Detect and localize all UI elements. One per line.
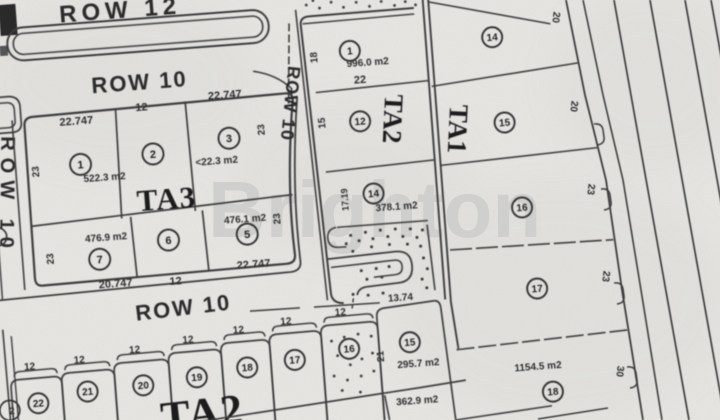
svg-text:23: 23 — [584, 183, 596, 196]
svg-text:6: 6 — [165, 235, 172, 247]
svg-text:18: 18 — [309, 51, 321, 63]
svg-text:19: 19 — [191, 372, 203, 384]
svg-text:18: 18 — [547, 387, 559, 399]
svg-text:22.747: 22.747 — [59, 114, 93, 128]
svg-text:13.74: 13.74 — [388, 292, 414, 305]
svg-text:15: 15 — [499, 118, 511, 130]
svg-text:30: 30 — [613, 365, 625, 378]
svg-text:12: 12 — [135, 101, 148, 114]
svg-text:TA2: TA2 — [377, 94, 409, 144]
svg-text:23: 23 — [45, 253, 57, 265]
svg-text:5: 5 — [244, 229, 251, 241]
svg-text:16: 16 — [516, 203, 528, 215]
svg-text:23: 23 — [272, 212, 284, 224]
svg-text:20.747: 20.747 — [98, 277, 132, 291]
svg-text:TA1: TA1 — [442, 104, 474, 154]
svg-text:22.747: 22.747 — [236, 257, 270, 271]
svg-text:ROW 10: ROW 10 — [0, 136, 18, 255]
svg-text:17.19: 17.19 — [339, 188, 351, 211]
svg-text:18: 18 — [241, 363, 253, 375]
svg-text:23: 23 — [31, 165, 43, 177]
svg-text:20: 20 — [137, 381, 149, 393]
svg-text:22: 22 — [32, 398, 44, 410]
svg-text:12: 12 — [169, 275, 182, 288]
svg-text:12: 12 — [354, 117, 366, 129]
svg-text:15: 15 — [317, 117, 329, 129]
svg-text:Brighton: Brighton — [208, 165, 541, 254]
svg-text:3: 3 — [226, 133, 233, 145]
svg-text:7: 7 — [96, 254, 103, 266]
svg-text:15: 15 — [404, 337, 416, 349]
svg-text:21: 21 — [82, 387, 94, 399]
svg-text:14: 14 — [486, 32, 498, 44]
svg-text:20: 20 — [549, 11, 561, 24]
svg-text:16: 16 — [343, 344, 355, 356]
svg-text:17: 17 — [531, 284, 543, 296]
svg-text:20: 20 — [567, 100, 579, 113]
svg-text:22: 22 — [353, 74, 366, 87]
svg-text:21: 21 — [375, 350, 387, 362]
svg-text:2: 2 — [150, 149, 157, 161]
svg-text:14: 14 — [368, 189, 380, 201]
svg-text:1: 1 — [77, 159, 84, 171]
svg-text:TA3: TA3 — [135, 179, 197, 218]
svg-text:23: 23 — [599, 270, 611, 283]
svg-text:22.747: 22.747 — [208, 88, 242, 102]
svg-text:17: 17 — [289, 355, 301, 367]
svg-text:23: 23 — [256, 123, 268, 135]
